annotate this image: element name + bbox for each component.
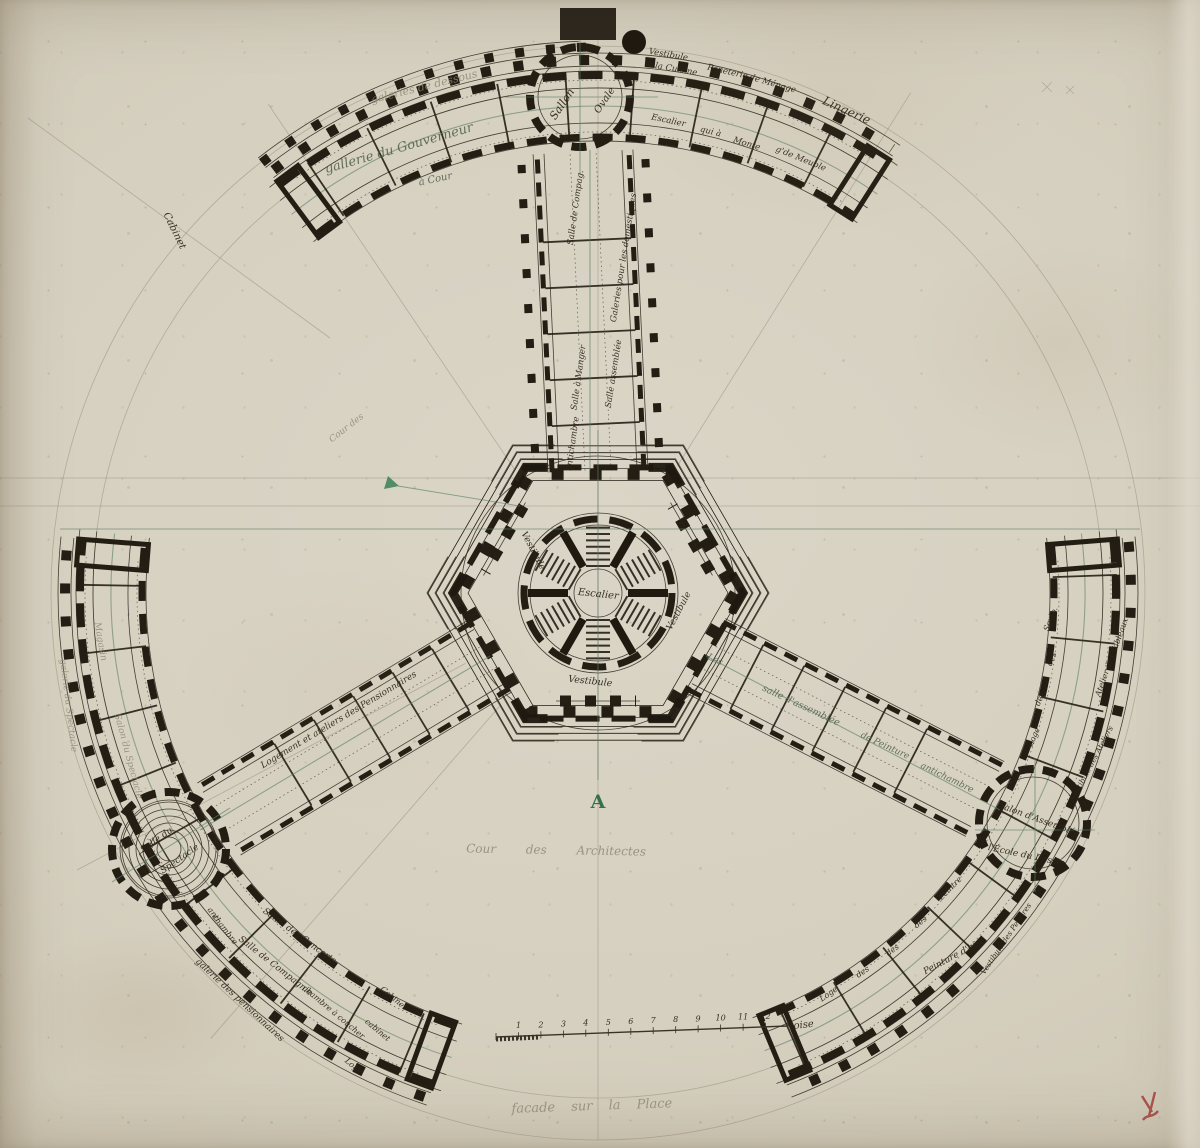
scale-tick-number: 4: [582, 1019, 588, 1028]
plan-label: Vestibule: [568, 674, 613, 690]
plan-label: salle d'assemblée: [761, 683, 842, 729]
scale-tick-number: 6: [628, 1017, 633, 1026]
plan-label: Magasin: [91, 621, 108, 662]
plan-label: toise: [789, 1019, 814, 1032]
plan-label: Cour des: [328, 412, 367, 445]
theatre-rotunda-southwest: [112, 792, 226, 906]
plan-label: Salle à Manger: [569, 343, 589, 410]
plan-label: cabinet: [363, 1017, 392, 1044]
plan-label: antichambre: [564, 416, 581, 471]
collector-mark-red: [1142, 1092, 1158, 1120]
plan-label: Sallon: [547, 86, 577, 122]
scale-bar: 123456789101112: [496, 1012, 788, 1040]
plan-label: Escalier: [576, 587, 620, 602]
plan-label: Escalier: [649, 112, 687, 129]
scale-tick-number: 12: [760, 1012, 770, 1021]
plan-label: A: [590, 791, 606, 813]
plan-label: galerie du Spectacle: [57, 659, 78, 753]
scale-tick-number: 8: [673, 1015, 678, 1024]
plan-label: des: [884, 942, 901, 958]
scale-tick-number: 10: [716, 1014, 726, 1023]
plan-label: facade sur la Place: [510, 1096, 673, 1117]
scale-tick-number: 2: [537, 1020, 543, 1029]
plan-label: Ovale: [592, 85, 617, 115]
plan-label: Cour des Architectes: [466, 841, 646, 858]
plan-label: Spectacle: [159, 842, 201, 876]
scale-tick-number: 1: [516, 1021, 521, 1030]
plan-label: Salle de Compag.: [566, 170, 586, 246]
plan-label: qui à: [699, 124, 722, 140]
plan-label: Sculp.: [1042, 606, 1060, 633]
aged-paper-sheet: 123456789101112 galeries de dessousgalle…: [0, 0, 1200, 1148]
plan-label: Loge: [1025, 726, 1042, 749]
scale-tick-number: 5: [606, 1018, 611, 1027]
plan-label: Les: [705, 652, 725, 668]
scale-tick-number: 7: [651, 1016, 657, 1025]
scale-tick-number: 11: [738, 1013, 748, 1022]
red-chalk-mark: [1142, 1092, 1158, 1120]
plan-label: chambre à coucher: [301, 984, 368, 1042]
plan-label: Salle assemblée: [603, 339, 625, 409]
plan-label: Logement et ateliers des Pensionnaires: [258, 669, 419, 771]
scale-tick-number: 3: [561, 1020, 566, 1029]
ink-filled-dot: [622, 30, 646, 54]
plan-label: antichambre: [919, 761, 975, 795]
scale-tick-number: 9: [696, 1014, 701, 1023]
plan-label: à Cour: [418, 170, 455, 188]
rotunda-entrance-block: [560, 8, 616, 40]
plan-label: de Ménage: [748, 72, 797, 96]
plan-label: Lingerie: [820, 93, 873, 127]
pencil-construction-lines: [0, 36, 1200, 1140]
floor-plan-drawing: 123456789101112 galeries de dessousgalle…: [0, 0, 1200, 1148]
